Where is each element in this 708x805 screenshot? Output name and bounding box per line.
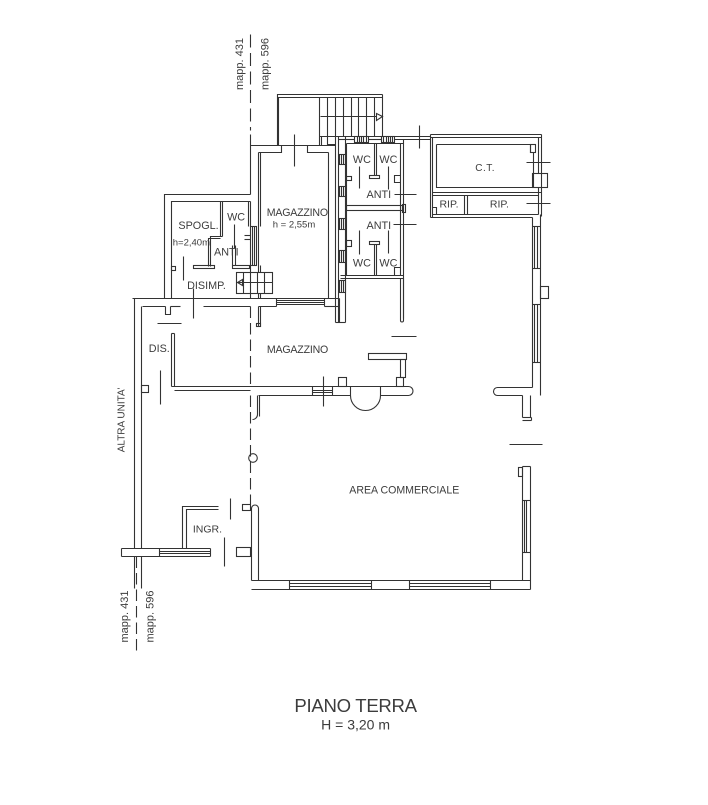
- svg-text:ANTI: ANTI: [214, 246, 239, 258]
- svg-text:ANTI: ANTI: [367, 220, 392, 232]
- svg-text:PIANO TERRA: PIANO TERRA: [294, 695, 417, 716]
- svg-text:WC: WC: [353, 154, 371, 166]
- svg-text:mapp. 431: mapp. 431: [234, 38, 246, 90]
- svg-text:SPOGL.: SPOGL.: [178, 220, 218, 232]
- svg-text:mapp. 596: mapp. 596: [259, 38, 271, 90]
- svg-text:DISIMP.: DISIMP.: [187, 280, 226, 292]
- svg-text:WC: WC: [353, 258, 371, 270]
- svg-text:h = 2,55m: h = 2,55m: [273, 220, 316, 231]
- svg-text:ALTRA UNITA': ALTRA UNITA': [117, 387, 128, 452]
- svg-text:RIP.: RIP.: [439, 199, 458, 211]
- svg-text:ANTI: ANTI: [367, 189, 392, 201]
- svg-text:WC: WC: [379, 154, 397, 166]
- svg-text:MAGAZZINO: MAGAZZINO: [267, 207, 328, 219]
- svg-text:WC: WC: [379, 258, 397, 270]
- svg-text:DIS.: DIS.: [149, 343, 170, 355]
- svg-text:C.T.: C.T.: [475, 163, 495, 174]
- svg-text:mapp. 431: mapp. 431: [119, 591, 131, 643]
- svg-text:RIP.: RIP.: [490, 199, 509, 211]
- svg-text:MAGAZZINO: MAGAZZINO: [267, 344, 328, 356]
- svg-text:AREA COMMERCIALE: AREA COMMERCIALE: [349, 485, 459, 497]
- svg-text:h=2,40m: h=2,40m: [173, 237, 210, 248]
- svg-text:INGR.: INGR.: [193, 523, 222, 535]
- svg-text:H = 3,20 m: H = 3,20 m: [321, 716, 390, 732]
- svg-text:mapp. 596: mapp. 596: [144, 591, 156, 643]
- svg-text:WC: WC: [227, 212, 245, 224]
